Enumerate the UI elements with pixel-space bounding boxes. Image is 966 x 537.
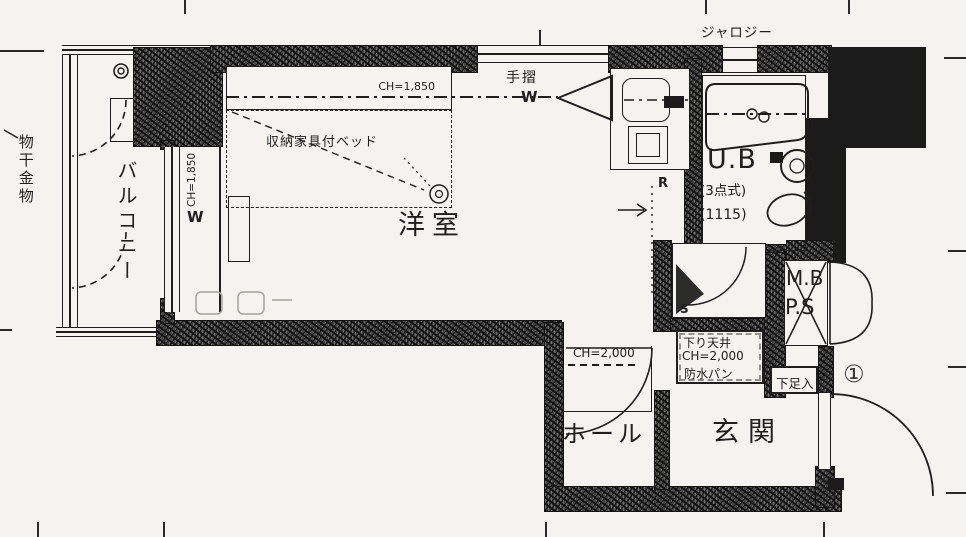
entrance-door-arc [831,394,933,496]
drain-icon [118,68,124,74]
crop-mark [823,522,825,537]
faded-print-marks [196,292,292,314]
laundry-bracket [110,98,134,142]
kitchen-sink [622,78,670,122]
meter-box-label: M.B [786,268,823,289]
wall [544,486,842,512]
entrance-label: 玄関 [712,419,784,447]
storage-label: S [680,303,689,316]
western-room-label: 洋室 [398,212,466,240]
bed-side-cabinet [228,196,250,262]
stove-burner [636,133,660,157]
crop-mark [163,522,165,537]
balcony-window [164,147,180,312]
bed-headboard: CH=1,850 [226,66,452,110]
crop-mark [705,0,707,14]
wall [156,320,562,346]
crop-mark [0,50,44,52]
entrance-door-leaf [818,392,831,470]
wall [544,322,564,512]
washer-space: 下り天井 CH=2,000 防水パン [676,330,764,384]
crop-mark [948,250,966,252]
wall [757,45,832,73]
hall-zone-dash [568,364,636,366]
hall-ch-label: CH=2,000 [573,347,635,360]
pointer-line [4,130,18,138]
crop-mark [545,522,547,537]
crop-mark [944,57,966,59]
meter-box-doors-arc [830,262,872,344]
crop-mark [184,0,186,14]
crop-mark [946,492,966,494]
jalousie-label: ジャロジー [701,26,773,40]
waterproof-pan-label: 防水パン [684,365,733,382]
storage-bed-label: 収納家具付ベッド [266,136,378,150]
crop-mark [848,0,850,14]
balcony-window-ch-label: CH=1,850 [187,153,198,207]
jalousie-window [723,47,757,73]
refrigerator-label: R [658,177,668,191]
unit-bath-label: U.B [707,146,757,174]
bed-outline [226,110,452,208]
balcony-rail-bottom [56,327,162,337]
lowered-ceiling-ch-label: CH=2,000 [682,349,744,363]
fridge-arrow-icon [618,204,646,216]
entrance-door-number: ① [843,362,865,387]
hall-label: ホール [562,422,646,447]
opening-triangle-icon [558,76,612,120]
balcony-rail-left [62,45,78,337]
handrail-w-label: W [521,90,538,106]
ceiling-height-label: CH=1,850 [378,80,435,93]
opening-centerline [226,96,558,98]
unit-bath-type-label: (3点式) [700,184,746,198]
crop-mark [948,366,966,368]
pipe-space-label: P.S [785,296,814,318]
floor-plan: CH=1,850 下り天井 CH=2,000 防水パン 下足入 [0,0,966,537]
wall [654,390,670,490]
bath-centerline [706,113,806,115]
window-top [478,45,608,63]
crop-mark [37,522,39,537]
wall-solid [828,478,844,490]
room-wall-line [219,147,221,312]
drain-icon [114,64,128,78]
balcony-label: バルコニー [115,160,136,285]
shoe-cabinet-label: 下足入 [776,373,814,392]
crop-mark [0,329,12,331]
wall [818,346,834,398]
laundry-hardware-label: 物干金物 [17,134,33,206]
handrail-label: 手摺 [506,71,538,86]
faucet-icon [664,96,684,108]
balcony-window-w-label: W [187,210,204,226]
unit-bath-size-label: (1115) [700,208,747,223]
shoe-cabinet: 下足入 [770,366,818,394]
